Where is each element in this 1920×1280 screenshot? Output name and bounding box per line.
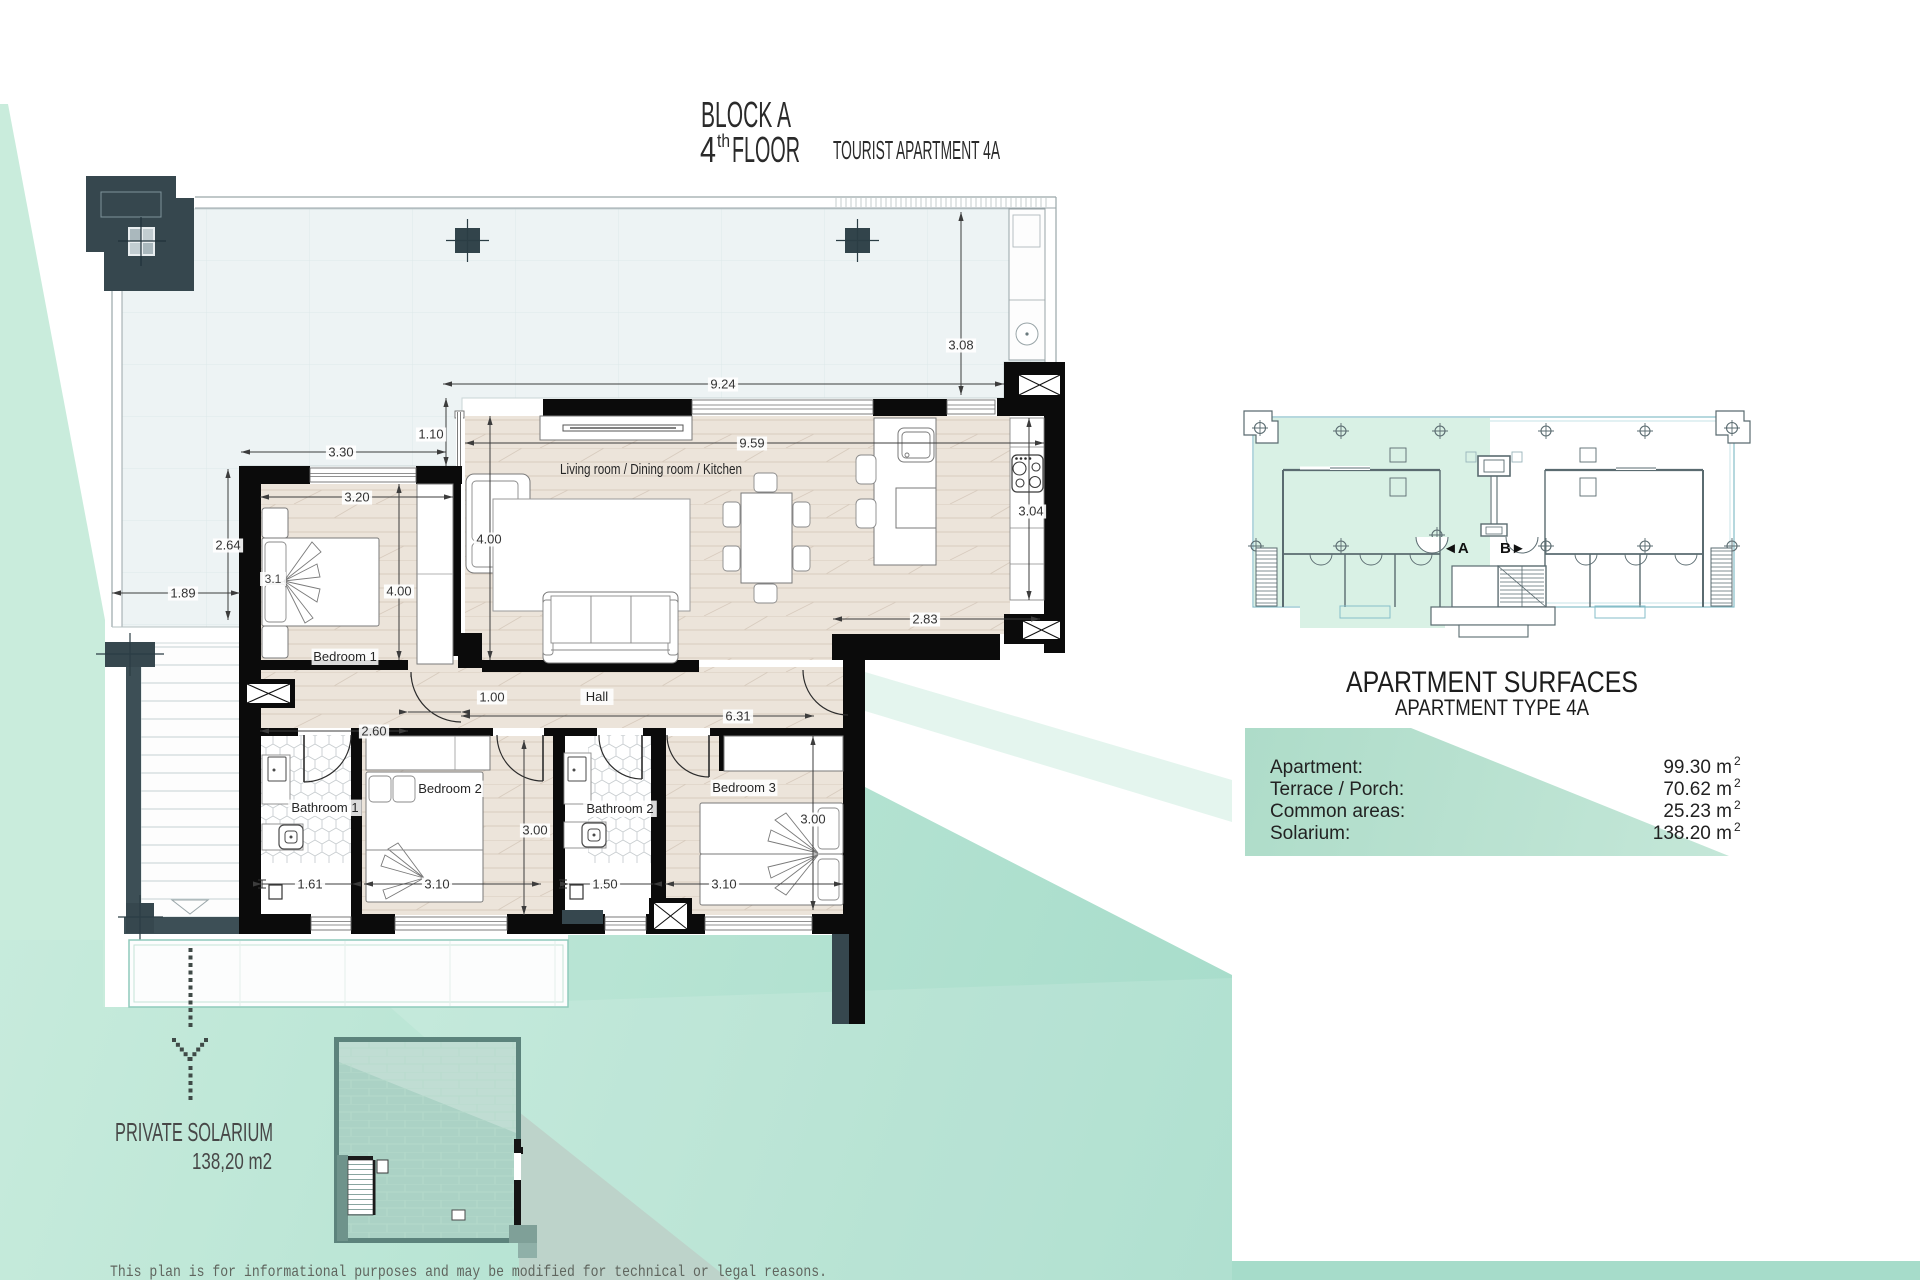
svg-text:◄A: ◄A (1443, 540, 1469, 557)
svg-text:3.10: 3.10 (711, 877, 736, 892)
svg-text:3.08: 3.08 (948, 338, 973, 353)
svg-text:Living room / Dining room / Ki: Living room / Dining room / Kitchen (560, 462, 742, 478)
svg-text:9.24: 9.24 (710, 377, 735, 392)
svg-text:138,20 m2: 138,20 m2 (192, 1148, 272, 1174)
svg-text:1.50: 1.50 (592, 877, 617, 892)
svg-text:Hall: Hall (586, 689, 609, 704)
svg-text:3.10: 3.10 (424, 877, 449, 892)
svg-text:2: 2 (1734, 754, 1741, 768)
svg-text:4.00: 4.00 (476, 532, 501, 547)
svg-text:3.04: 3.04 (1018, 504, 1043, 519)
svg-text:1.61: 1.61 (297, 877, 322, 892)
svg-text:70.62 m: 70.62 m (1663, 779, 1732, 800)
svg-text:Common areas:: Common areas: (1270, 801, 1405, 822)
svg-text:3.00: 3.00 (522, 823, 547, 838)
svg-text:4: 4 (700, 129, 716, 170)
svg-text:9.59: 9.59 (739, 436, 764, 451)
svg-text:1.89: 1.89 (170, 586, 195, 601)
svg-text:2.60: 2.60 (361, 724, 386, 739)
svg-text:2: 2 (1734, 820, 1741, 834)
svg-text:Apartment:: Apartment: (1270, 757, 1363, 778)
svg-text:2: 2 (1734, 776, 1741, 790)
svg-text:6.31: 6.31 (725, 709, 750, 724)
svg-text:TOURIST APARTMENT 4A: TOURIST APARTMENT 4A (833, 135, 1000, 165)
svg-text:FLOOR: FLOOR (732, 129, 800, 170)
svg-text:2: 2 (1734, 798, 1741, 812)
svg-text:Bedroom 3: Bedroom 3 (712, 780, 776, 795)
svg-text:PRIVATE SOLARIUM: PRIVATE SOLARIUM (115, 1117, 273, 1147)
svg-text:Bathroom 1: Bathroom 1 (291, 800, 358, 815)
svg-text:th: th (717, 131, 730, 151)
svg-text:25.23 m: 25.23 m (1663, 801, 1732, 822)
svg-text:1.10: 1.10 (418, 427, 443, 442)
svg-text:4.00: 4.00 (386, 584, 411, 599)
svg-text:Bedroom 1: Bedroom 1 (313, 649, 377, 664)
svg-text:This plan is for informational: This plan is for informational purposes … (110, 1263, 827, 1280)
svg-text:138.20 m: 138.20 m (1653, 823, 1732, 844)
svg-text:Terrace / Porch:: Terrace / Porch: (1270, 779, 1404, 800)
svg-text:1.00: 1.00 (479, 690, 504, 705)
svg-text:2.83: 2.83 (912, 612, 937, 627)
svg-text:Bathroom 2: Bathroom 2 (586, 801, 653, 816)
svg-text:APARTMENT TYPE 4A: APARTMENT TYPE 4A (1395, 695, 1589, 720)
svg-text:99.30 m: 99.30 m (1663, 757, 1732, 778)
svg-text:3.00: 3.00 (800, 812, 825, 827)
svg-text:2.64: 2.64 (215, 538, 240, 553)
svg-text:Solarium:: Solarium: (1270, 823, 1350, 844)
svg-text:Bedroom 2: Bedroom 2 (418, 781, 482, 796)
svg-text:3.30: 3.30 (328, 445, 353, 460)
svg-text:3.1: 3.1 (265, 572, 282, 586)
svg-text:B►: B► (1500, 540, 1526, 557)
svg-text:3.20: 3.20 (344, 490, 369, 505)
